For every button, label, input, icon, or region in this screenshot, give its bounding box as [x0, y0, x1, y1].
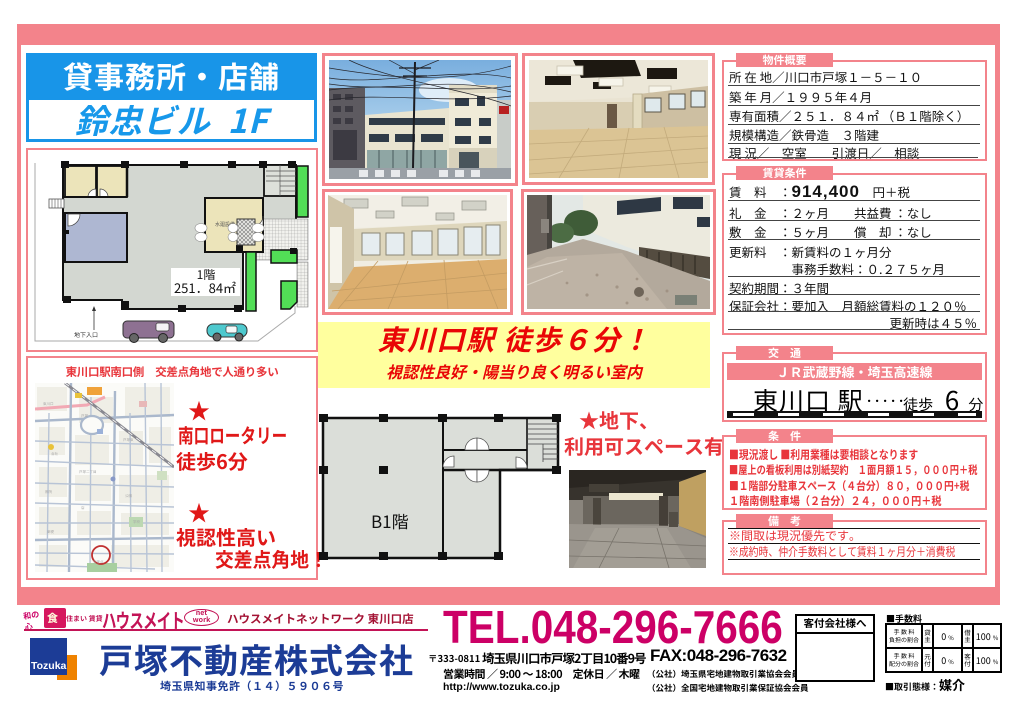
- svg-text:郵便: 郵便: [47, 530, 54, 535]
- svg-text:地下入口: 地下入口: [74, 330, 98, 339]
- svg-text:医院: 医院: [45, 490, 52, 495]
- svg-text:東川口: 東川口: [43, 402, 54, 407]
- svg-text:戸塚東: 戸塚東: [123, 438, 134, 443]
- svg-text:戸塚二丁目: 戸塚二丁目: [79, 470, 97, 475]
- svg-text:店: 店: [81, 506, 85, 511]
- svg-text:会社: 会社: [51, 452, 58, 457]
- svg-text:B1階: B1階: [371, 508, 409, 533]
- svg-text:戸塚: 戸塚: [81, 414, 88, 419]
- svg-text:学校: 学校: [133, 520, 140, 525]
- svg-text:交差点: 交差点: [93, 560, 104, 565]
- svg-text:公園: 公園: [125, 494, 132, 499]
- svg-text:251．84㎡: 251．84㎡: [174, 278, 236, 297]
